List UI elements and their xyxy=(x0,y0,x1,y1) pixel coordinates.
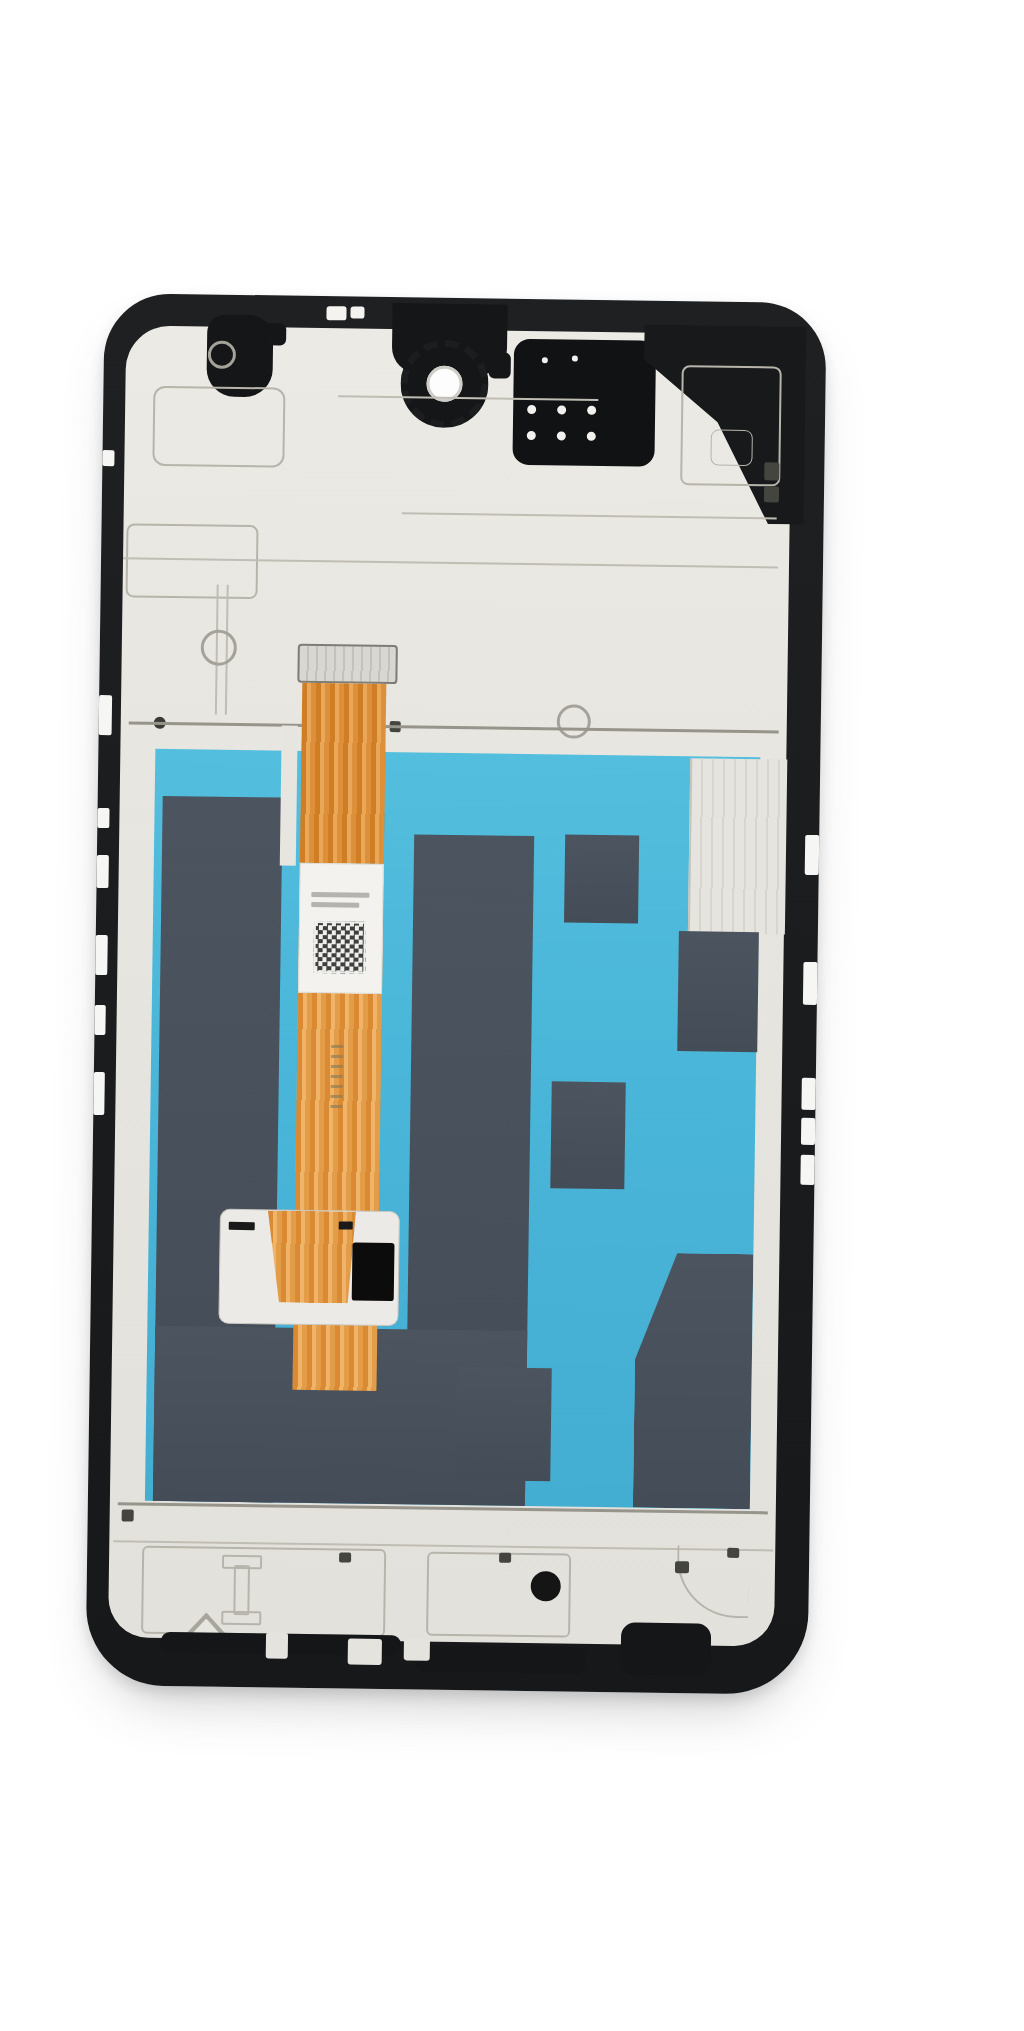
shield-pad xyxy=(564,835,639,924)
edge-notch-right xyxy=(801,1078,815,1110)
driver-ic-pad xyxy=(218,1209,400,1327)
etched-rect xyxy=(152,386,285,468)
frame-tab xyxy=(348,1639,382,1665)
screw-hole xyxy=(122,1509,134,1521)
screw-hole xyxy=(727,1548,739,1558)
screw-hole xyxy=(339,1552,351,1562)
edge-notch-right xyxy=(803,962,818,1005)
speaker-block xyxy=(512,339,656,467)
flex-printed-text xyxy=(330,1038,343,1108)
flex-label xyxy=(298,863,384,994)
plate-ridge xyxy=(280,726,298,866)
edge-notch-right xyxy=(800,1155,814,1185)
flex-connector-tab xyxy=(297,644,398,684)
edge-notch-right xyxy=(801,1118,815,1145)
edge-notch-left xyxy=(94,1005,105,1035)
edge-notch-left xyxy=(99,695,113,735)
shield-pad xyxy=(677,931,759,1052)
speaker-dot xyxy=(557,405,566,414)
edge-notch-left xyxy=(97,808,109,828)
photo-stage xyxy=(0,0,1024,2031)
plate-strip xyxy=(688,758,787,934)
i-beam-bottom xyxy=(221,1611,261,1626)
etched-rect xyxy=(126,523,259,599)
antenna-slot xyxy=(326,306,346,320)
edge-notch-left xyxy=(95,935,108,975)
speaker-dot xyxy=(572,356,578,362)
speaker-dot xyxy=(542,357,548,363)
alignment-mark xyxy=(229,1222,255,1230)
qr-code xyxy=(313,921,366,974)
bottom-gasket xyxy=(621,1622,712,1675)
shield-pad xyxy=(456,1367,552,1481)
phone-assembly xyxy=(85,293,826,1695)
speaker-dot xyxy=(587,406,596,415)
screw-hole xyxy=(675,1561,689,1573)
edge-notch-left xyxy=(102,450,114,466)
label-text-line xyxy=(311,892,369,898)
antenna-slot xyxy=(350,306,364,318)
alignment-mark xyxy=(339,1221,353,1229)
i-beam-mid xyxy=(233,1565,250,1615)
screw-hole xyxy=(499,1553,511,1563)
sensor-cutout xyxy=(264,323,286,345)
speaker-dot xyxy=(527,431,536,440)
speaker-dot xyxy=(587,432,596,441)
speaker-dot xyxy=(527,405,536,414)
edge-notch-left xyxy=(96,855,108,888)
speaker-dot xyxy=(557,431,566,440)
shield-pad xyxy=(550,1081,625,1189)
frame-tab xyxy=(266,1632,288,1658)
frame-tab xyxy=(404,1638,430,1660)
flash-cutout xyxy=(489,352,511,378)
driver-ic-chip xyxy=(352,1243,395,1302)
etched-rect xyxy=(710,430,752,467)
bottom-gasket xyxy=(416,1646,586,1674)
flex-ribbon xyxy=(300,683,387,864)
frame-hole xyxy=(764,462,779,480)
frame-hole xyxy=(764,486,779,502)
label-text-line xyxy=(311,902,359,908)
edge-notch-right xyxy=(805,835,820,875)
edge-notch-left xyxy=(93,1072,105,1115)
